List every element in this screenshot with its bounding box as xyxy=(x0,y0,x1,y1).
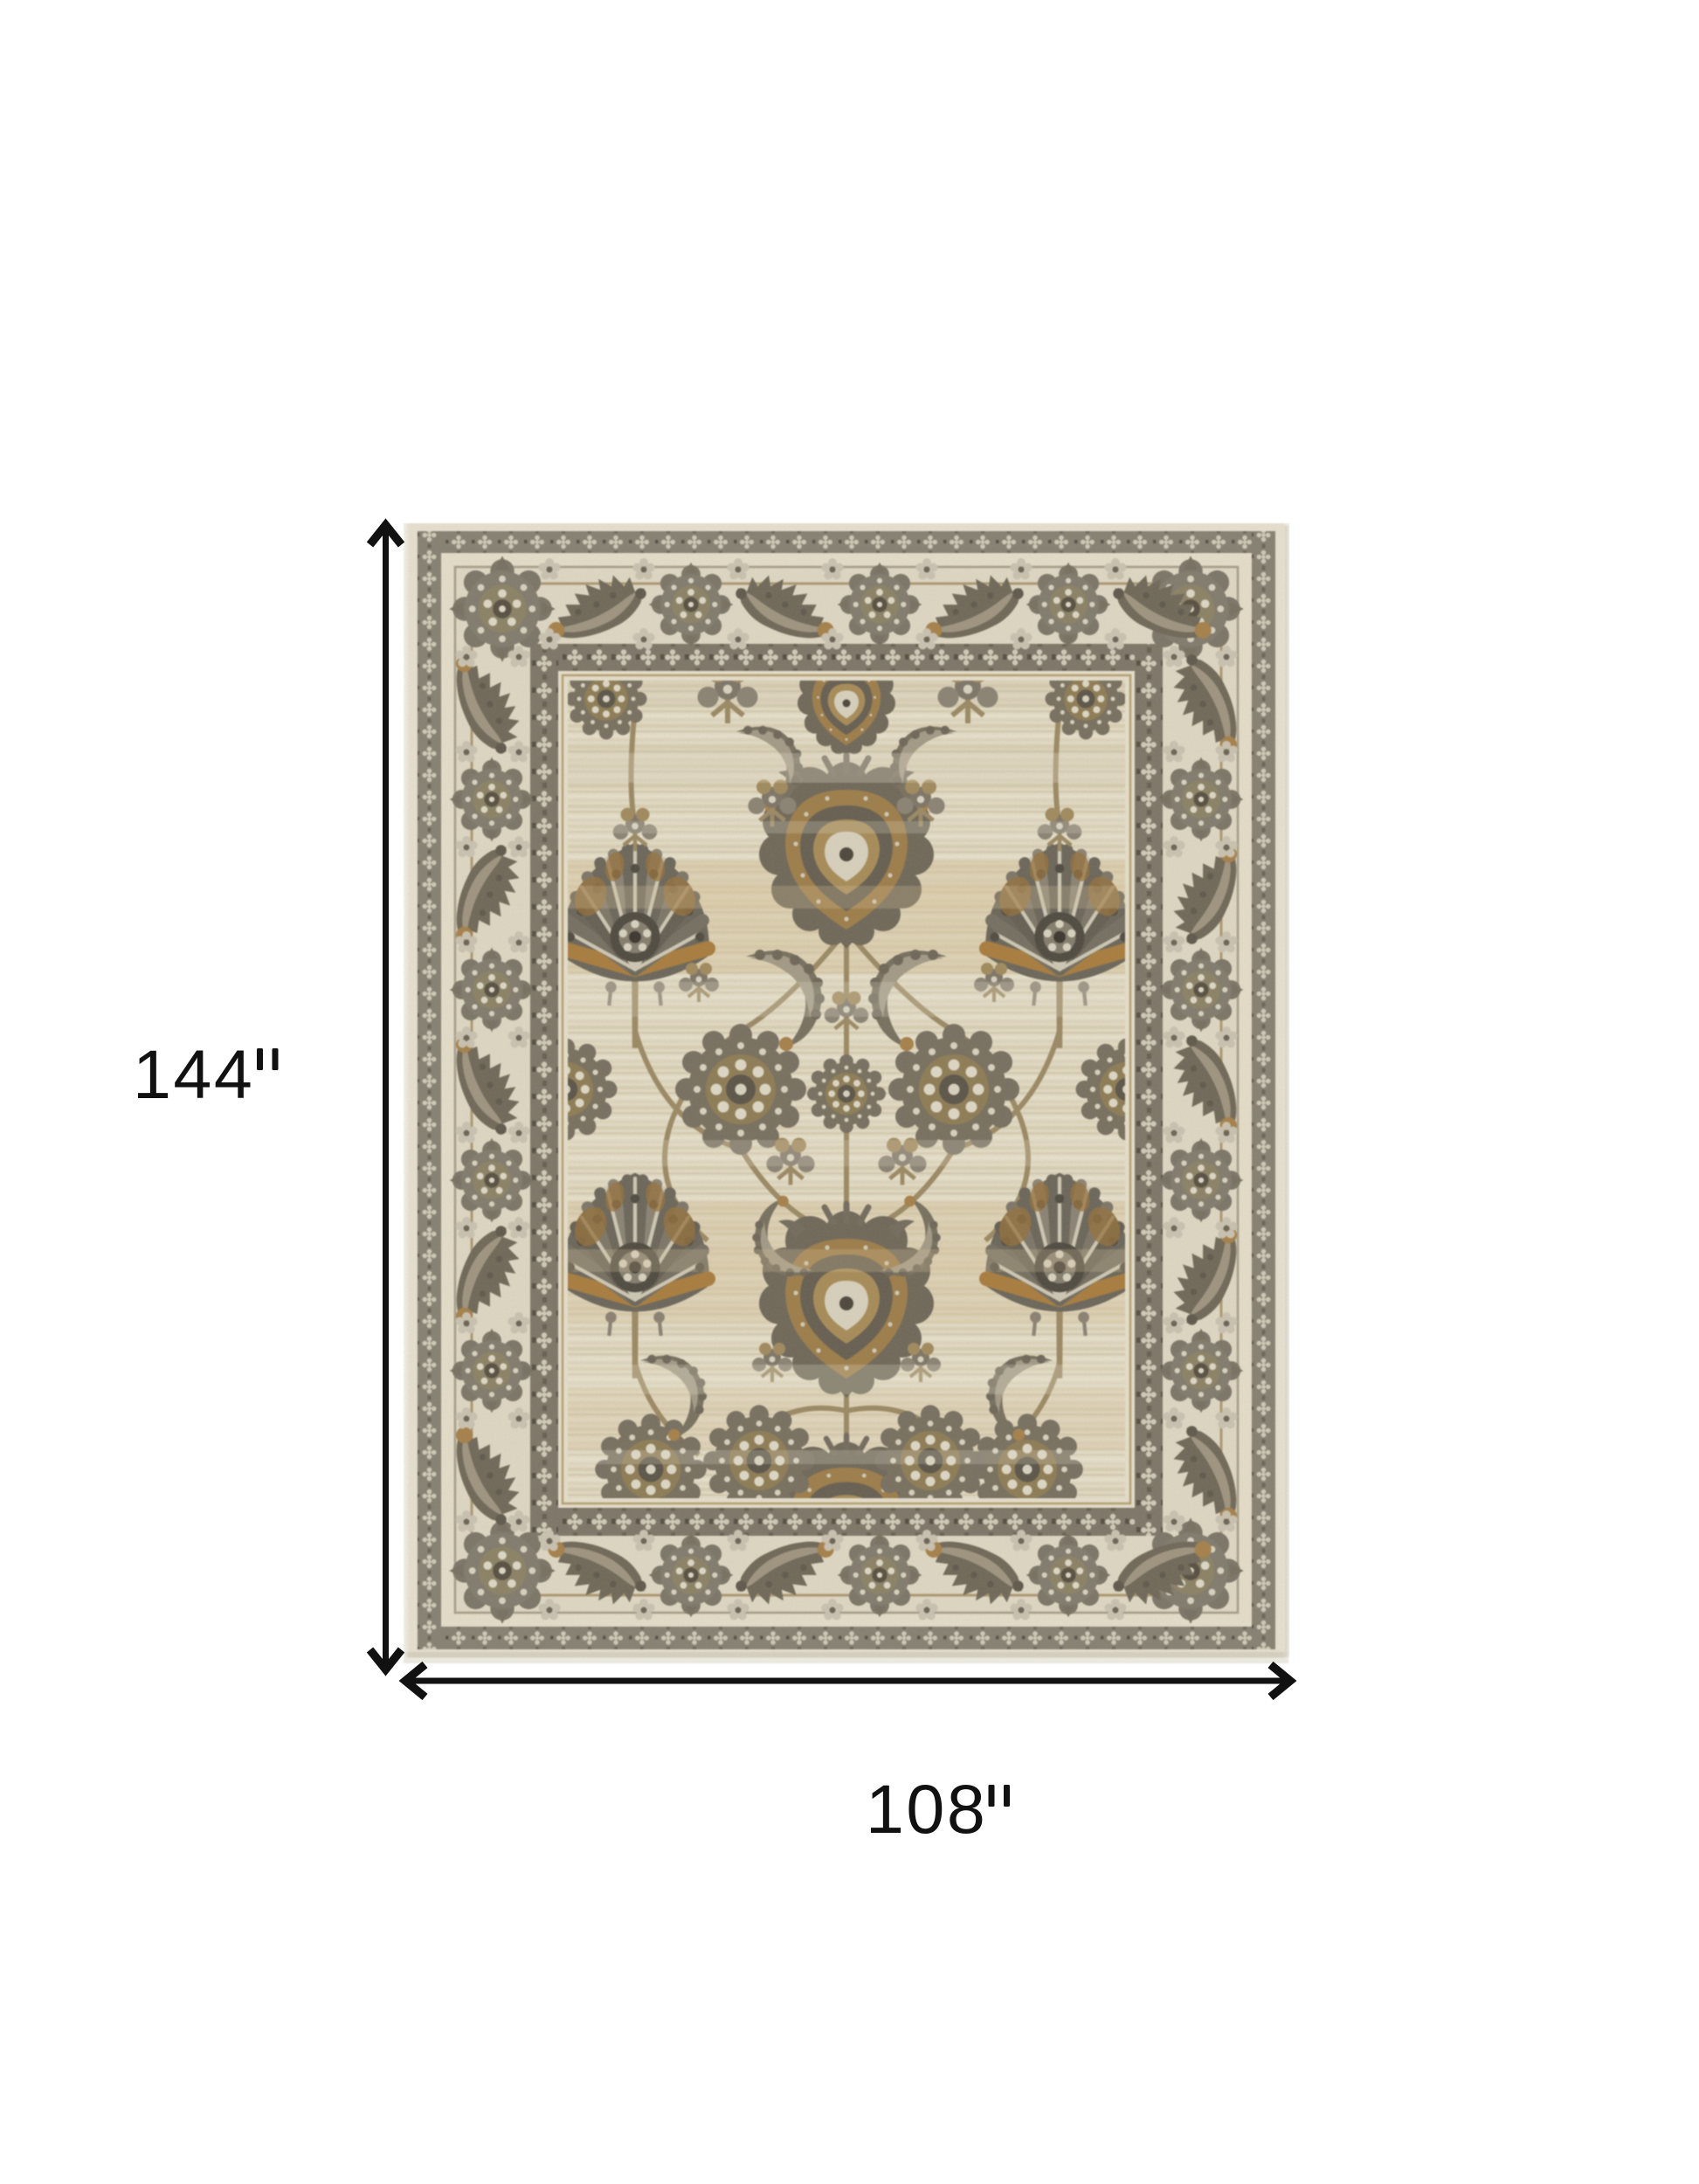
svg-text:144: 144 xyxy=(133,1035,254,1113)
svg-text:108: 108 xyxy=(866,1770,987,1848)
